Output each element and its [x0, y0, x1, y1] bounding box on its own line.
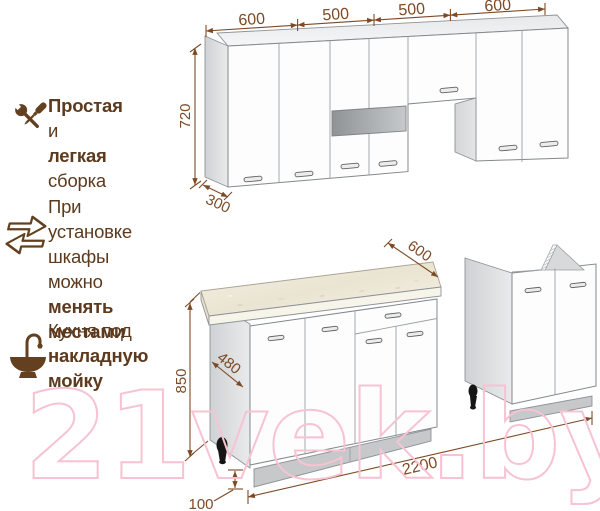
feature-line: шкафы можно — [48, 244, 132, 294]
door-handle — [540, 141, 558, 147]
dim-upper-height: 720 — [177, 103, 194, 128]
lower-cabinets — [201, 245, 596, 487]
dim-upper-depth: 300 — [203, 191, 233, 217]
door-handle — [379, 161, 397, 167]
dim-upper-width-4: 600 — [484, 0, 512, 15]
feature-line: Простая и — [48, 93, 123, 143]
feature-line: Кухня под — [48, 318, 148, 343]
upper-cabinets — [205, 15, 568, 187]
feature-line: При установке — [48, 194, 132, 244]
dim-total-length: 2200 — [401, 454, 440, 479]
door-handle — [341, 163, 359, 169]
feature-line: мойку — [48, 368, 148, 393]
lower-left-side-panel — [210, 300, 250, 468]
dim-upper-width-2: 500 — [322, 6, 350, 25]
door-handle — [244, 176, 262, 182]
door-handle — [440, 87, 458, 93]
tools-icon — [10, 96, 50, 142]
door-handle — [295, 171, 313, 177]
dim-countertop-depth: 600 — [404, 237, 434, 265]
sink-cabinet-leg — [469, 385, 478, 410]
feature-line: накладную — [48, 343, 148, 368]
hood-gap-side-panel — [455, 98, 476, 161]
door-handle — [499, 145, 517, 151]
dim-upper-width-3: 500 — [398, 1, 426, 20]
glass-insert — [332, 106, 406, 136]
kitchen-product-illustration: 600 500 500 600 720 300 — [0, 0, 600, 511]
cabinet-leg — [217, 437, 228, 464]
upper-left-side-panel — [205, 36, 228, 187]
feature-line: легкая сборка — [48, 143, 123, 193]
swap-arrows-icon — [2, 210, 48, 260]
dim-upper-width-1: 600 — [238, 11, 266, 30]
sink-icon — [8, 331, 48, 383]
sink-left-side-panel — [465, 258, 512, 404]
sink-cabinet — [465, 245, 596, 422]
dim-lower-height: 850 — [173, 368, 190, 393]
dim-plinth-height: 100 — [188, 496, 213, 511]
